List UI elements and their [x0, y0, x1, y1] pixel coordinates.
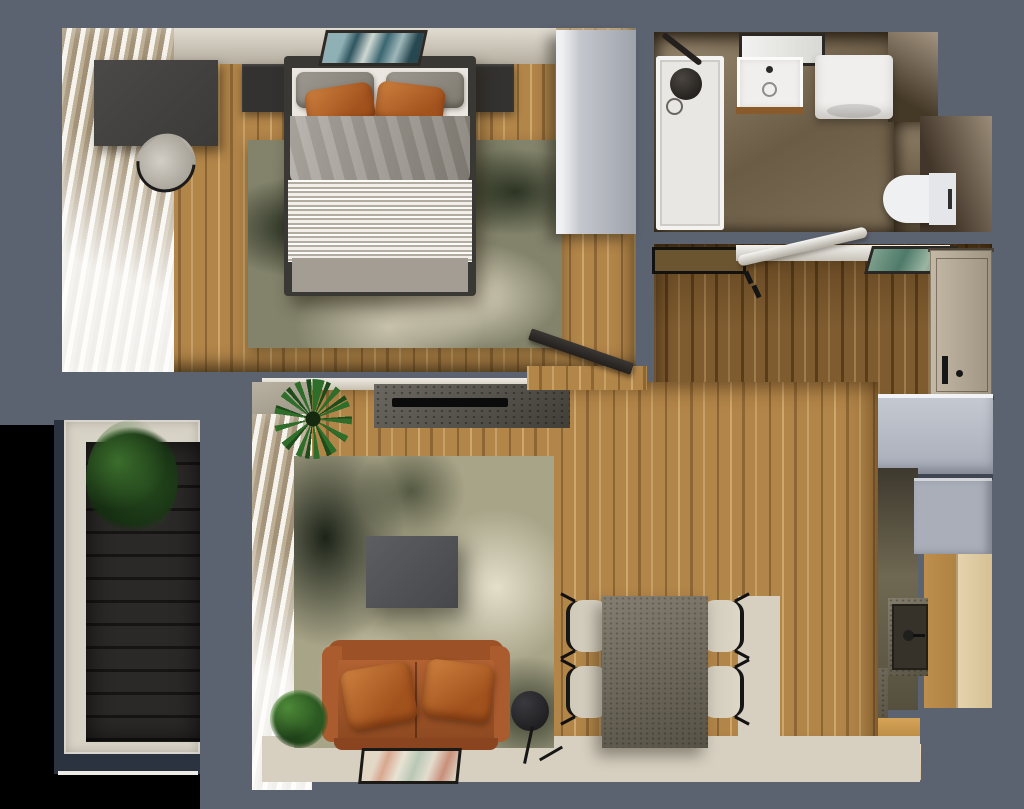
living-floor-art: [358, 748, 462, 784]
tv: [392, 398, 508, 407]
coffee-table: [366, 536, 458, 608]
toilet-flush-handle: [948, 189, 952, 209]
sink-faucet: [766, 66, 773, 73]
shower-head: [670, 68, 702, 100]
toilet-bowl: [883, 175, 935, 223]
sofa-pillow-right: [421, 658, 496, 724]
bed-duvet: [290, 116, 470, 184]
bedroom-wall-art: [318, 30, 428, 66]
bathroom-wall-corner-top: [888, 32, 938, 122]
kitchen-tall-cabinet-pale: [956, 554, 992, 708]
sofa-pillow-left: [339, 660, 418, 731]
dining-table: [602, 596, 708, 748]
entrance-door-knob: [956, 370, 963, 377]
balcony-edge-highlight: [58, 771, 198, 775]
bedroom-desk: [94, 60, 218, 146]
bedroom-wardrobe: [556, 30, 636, 234]
bed-blanket: [288, 180, 472, 262]
washing-machine-door-shadow: [827, 104, 881, 118]
living-palm-plant: [274, 379, 352, 459]
shower-drain-ring: [666, 98, 683, 115]
bed-foot: [292, 258, 468, 292]
floorplan-scene: [0, 0, 1024, 809]
kitchen-cream-floor-wedge: [738, 596, 780, 740]
sofa: [322, 640, 510, 750]
kitchen-gray-cabinet: [914, 478, 992, 554]
kitchen-faucet-arm: [913, 634, 925, 637]
balcony-plant: [86, 420, 178, 538]
vanity-wood-edge: [736, 107, 804, 114]
entrance-door-handle: [942, 356, 948, 384]
hallway-door-mat: [652, 247, 746, 274]
nightstand-left: [242, 64, 288, 112]
living-small-plant: [270, 690, 328, 748]
sink-drain-ring: [762, 82, 777, 97]
floor-lamp-head: [511, 691, 549, 731]
